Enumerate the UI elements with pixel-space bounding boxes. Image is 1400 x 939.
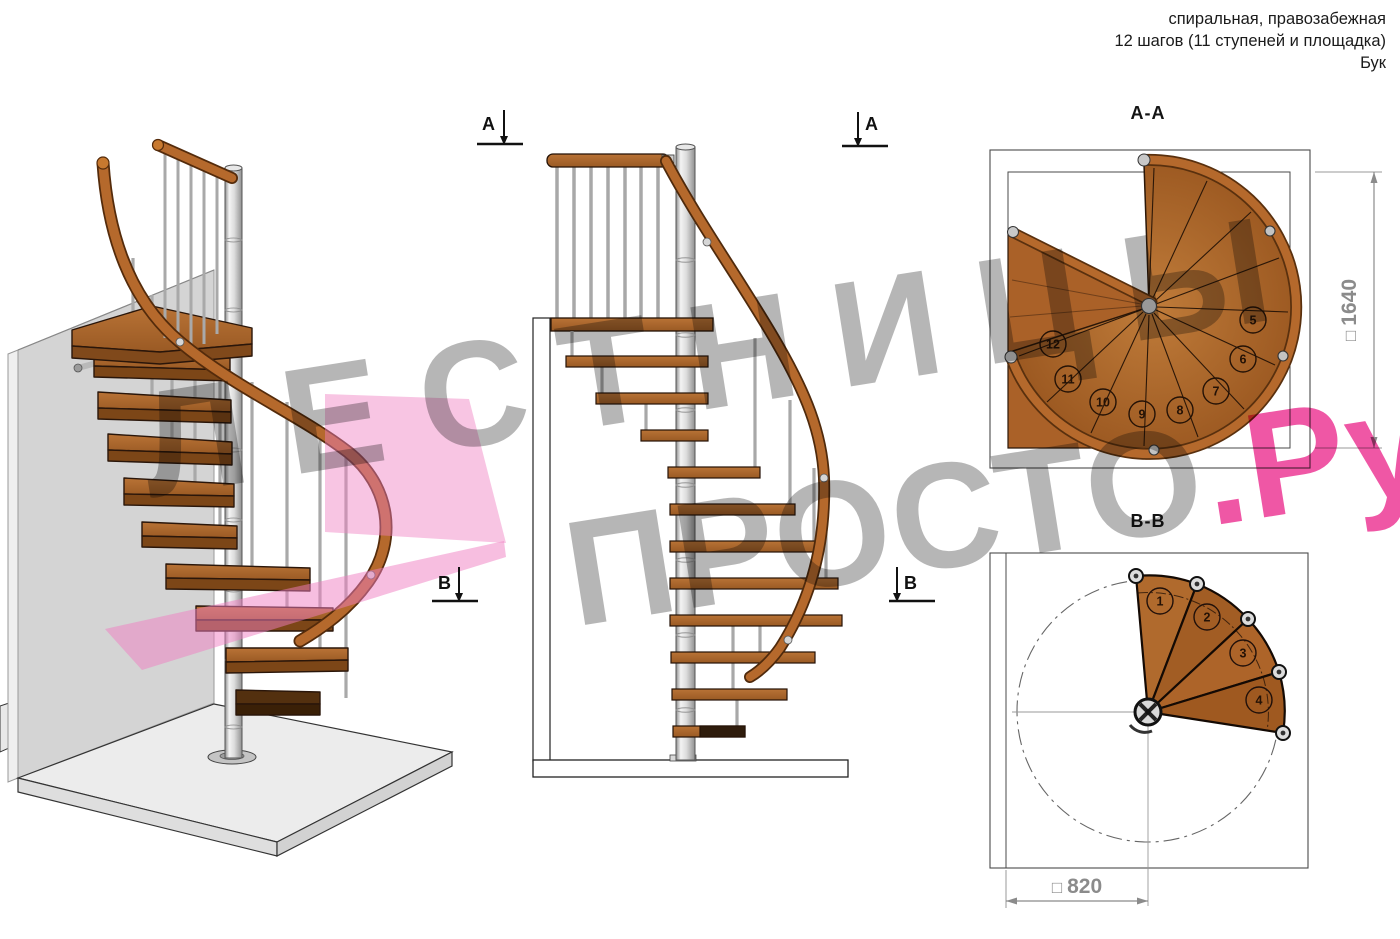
section-marker-a-right: А: [842, 112, 888, 147]
bb-baluster: [1129, 569, 1143, 583]
section-marker-label: А: [865, 114, 878, 134]
svg-text:7: 7: [1213, 385, 1220, 399]
svg-text:6: 6: [1240, 353, 1247, 367]
iso-view: [0, 140, 506, 857]
section-marker-label: В: [904, 573, 917, 593]
elevation-floor: [533, 760, 848, 777]
bb-dimension-label: □820: [1052, 875, 1102, 898]
section-aa-title: А-А: [1131, 103, 1166, 123]
drawing-canvas: А А В В А-А: [0, 0, 1400, 939]
aa-dimension-label: □1640: [1338, 279, 1361, 341]
svg-text:11: 11: [1061, 373, 1074, 387]
elevation-top-handrail: [547, 154, 669, 167]
aa-dimension: □1640: [1315, 172, 1382, 448]
svg-text:12: 12: [1046, 338, 1060, 352]
bb-baluster: [1276, 726, 1290, 740]
elevation-balusters: [572, 331, 826, 726]
iso-step: [142, 522, 237, 549]
svg-text:4: 4: [1256, 694, 1263, 708]
bb-center-pole-hub: [1130, 699, 1161, 732]
iso-step: [226, 648, 348, 673]
elevation-top-balustrade: [547, 154, 674, 318]
bb-baluster: [1190, 577, 1204, 591]
section-plane-upper: [325, 394, 506, 543]
bb-dimension: □820: [1006, 870, 1148, 908]
svg-text:9: 9: [1139, 408, 1146, 422]
section-marker-a-left: А: [477, 110, 523, 145]
section-marker-b-right: В: [889, 567, 935, 602]
aa-pole-top: [1142, 299, 1157, 314]
iso-step: [166, 564, 310, 591]
iso-step: [236, 690, 320, 715]
iso-step: [124, 478, 234, 507]
section-marker-label: В: [438, 573, 451, 593]
bb-baluster: [1241, 612, 1255, 626]
section-aa-view: А-А: [990, 103, 1382, 468]
elevation-center-pole: [676, 144, 695, 760]
svg-text:5: 5: [1250, 314, 1257, 328]
section-marker-label: А: [482, 114, 495, 134]
spec-line-steps: 12 шагов (11 ступеней и площадка): [1114, 30, 1386, 52]
spec-line-type: спиральная, правозабежная: [1114, 8, 1386, 30]
elevation-steps: [566, 356, 842, 737]
staircase-drawing: А А В В А-А: [0, 0, 1400, 939]
svg-text:2: 2: [1204, 611, 1211, 625]
bb-baluster: [1272, 665, 1286, 679]
spec-header: спиральная, правозабежная 12 шагов (11 с…: [1114, 8, 1386, 74]
svg-text:1: 1: [1157, 595, 1164, 609]
spec-line-material: Бук: [1114, 52, 1386, 74]
svg-text:3: 3: [1240, 647, 1247, 661]
svg-text:10: 10: [1096, 396, 1110, 410]
elevation-view: А А В В: [432, 110, 935, 777]
svg-text:8: 8: [1177, 404, 1184, 418]
section-bb-title: В-В: [1131, 511, 1166, 531]
section-bb-view: В-В 1 2: [990, 511, 1308, 908]
elevation-platform: [551, 318, 713, 331]
elevation-wall: [533, 318, 550, 761]
